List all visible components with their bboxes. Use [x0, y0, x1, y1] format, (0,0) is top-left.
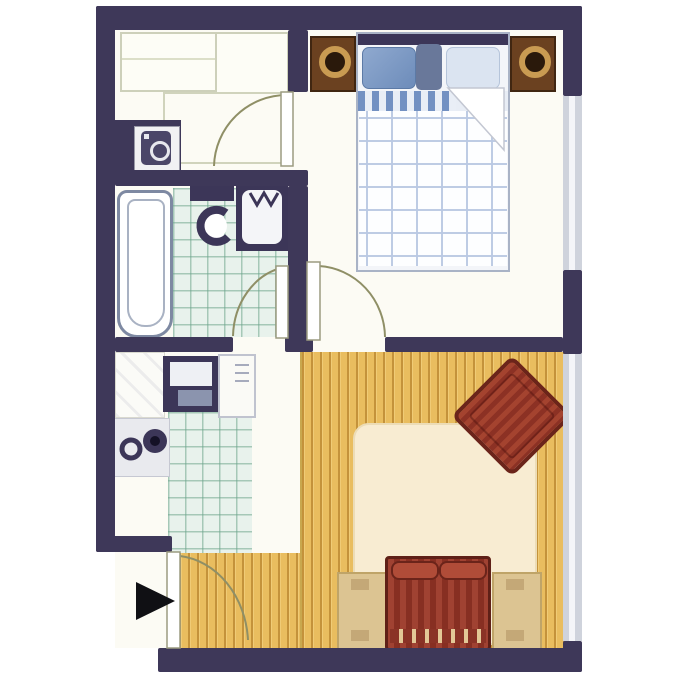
wall-bathroom-top	[115, 170, 308, 186]
wall-bathroom-right	[288, 186, 308, 352]
wall-bedroom-living-divider	[385, 337, 563, 352]
wall-bottom	[158, 648, 582, 672]
living-room-window	[563, 354, 582, 641]
wall-right-middle	[563, 270, 582, 354]
wall-top	[96, 6, 582, 30]
bedroom-window	[563, 96, 582, 270]
window-pane	[569, 354, 575, 641]
wall-right-bottom	[563, 641, 582, 672]
wall-left	[96, 6, 115, 552]
wall-door-pier	[285, 337, 313, 352]
wall-hall-bedroom	[288, 30, 308, 92]
floor-plan	[0, 0, 680, 680]
wall-entry-stub	[96, 536, 172, 552]
walls-layer	[0, 0, 680, 680]
window-pane	[569, 96, 575, 270]
wall-bathroom-bottom	[115, 337, 233, 352]
wall-right-top	[563, 6, 582, 96]
